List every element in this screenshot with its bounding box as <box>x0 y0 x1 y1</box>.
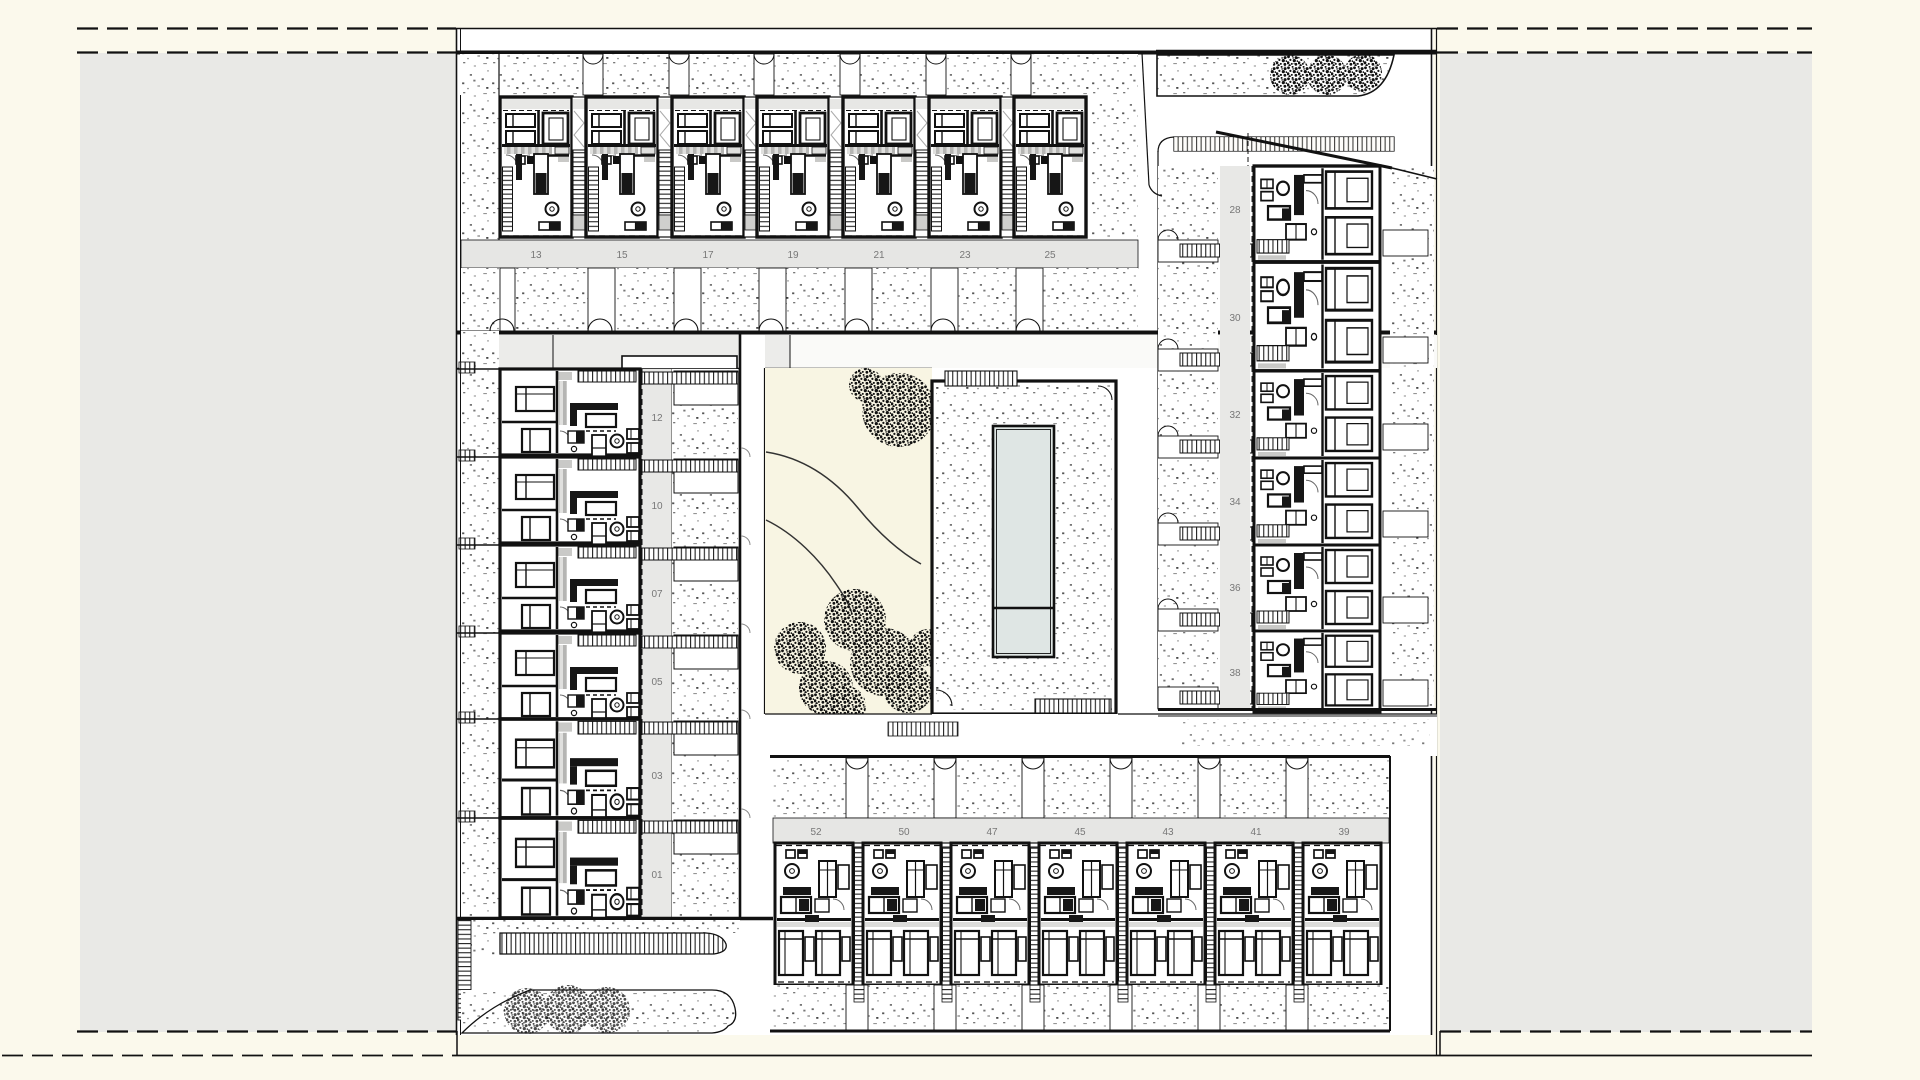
svg-text:28: 28 <box>1229 205 1241 216</box>
svg-text:41: 41 <box>1250 827 1262 838</box>
svg-text:34: 34 <box>1229 497 1241 508</box>
svg-text:17: 17 <box>702 250 714 261</box>
svg-text:39: 39 <box>1338 827 1350 838</box>
svg-text:21: 21 <box>873 250 885 261</box>
svg-text:43: 43 <box>1162 827 1174 838</box>
svg-text:47: 47 <box>986 827 998 838</box>
svg-text:03: 03 <box>651 771 663 782</box>
svg-text:36: 36 <box>1229 583 1241 594</box>
svg-text:01: 01 <box>651 870 663 881</box>
svg-text:05: 05 <box>651 677 663 688</box>
svg-text:30: 30 <box>1229 313 1241 324</box>
svg-text:25: 25 <box>1044 250 1056 261</box>
svg-text:15: 15 <box>616 250 628 261</box>
svg-text:45: 45 <box>1074 827 1086 838</box>
svg-text:07: 07 <box>651 589 663 600</box>
svg-text:52: 52 <box>810 827 822 838</box>
svg-text:32: 32 <box>1229 410 1241 421</box>
svg-text:50: 50 <box>898 827 910 838</box>
svg-text:12: 12 <box>651 413 663 424</box>
svg-text:10: 10 <box>651 501 663 512</box>
svg-text:19: 19 <box>787 250 799 261</box>
svg-text:13: 13 <box>530 250 542 261</box>
svg-text:23: 23 <box>959 250 971 261</box>
svg-text:38: 38 <box>1229 668 1241 679</box>
